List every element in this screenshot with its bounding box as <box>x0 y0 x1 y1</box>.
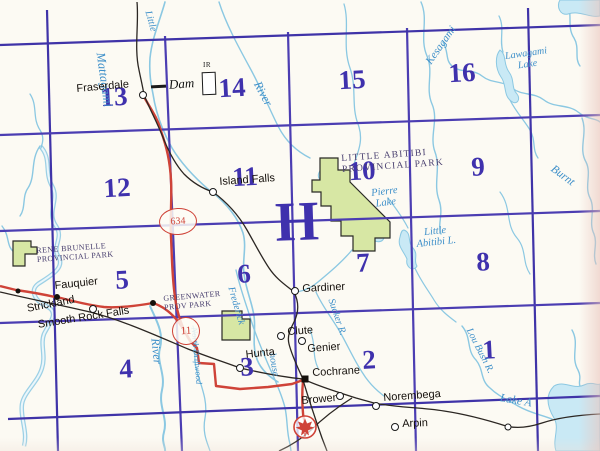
town-dot-hunta <box>236 364 244 372</box>
grid-number-14: 14 <box>218 72 247 104</box>
town-label-clute: Clute <box>287 324 313 338</box>
rene-brunelle-park-area <box>13 241 37 266</box>
indian-reserve-box <box>202 72 217 95</box>
map-index-sheet: 13141516121110956784321 MattagamiLittleR… <box>0 0 600 451</box>
water-label-little: LittleAbitibi L. <box>415 224 457 250</box>
map-dot-0 <box>16 289 21 294</box>
water-label-pierre: PierreLake <box>371 185 400 210</box>
town-dot-island-falls <box>209 188 217 196</box>
top-right-pond <box>558 0 600 16</box>
grid-number-8: 8 <box>475 246 490 278</box>
grid-number-9: 9 <box>470 151 485 183</box>
town-label-arpin: Arpin <box>402 417 428 430</box>
map-dot-1 <box>505 424 512 431</box>
grid-number-7: 7 <box>355 247 370 279</box>
indian-reserve-label: IR <box>203 61 211 69</box>
grid-v2 <box>165 36 182 451</box>
grid-number-2: 2 <box>361 344 376 376</box>
grid-number-12: 12 <box>103 172 132 204</box>
water-label-river: River <box>149 338 164 365</box>
grid-number-5: 5 <box>114 264 129 296</box>
mattagami-arm <box>2 146 40 252</box>
grid-number-15: 15 <box>338 64 367 96</box>
block-letter-h: H <box>274 189 320 254</box>
grid-number-6: 6 <box>236 258 251 290</box>
grid-v5 <box>528 8 538 451</box>
maple-leaf-marker <box>294 416 316 438</box>
little-abitibi-lake <box>399 230 417 269</box>
grid-h1 <box>0 25 600 45</box>
cell8-stream <box>500 192 530 274</box>
grid-number-4: 4 <box>118 353 133 385</box>
town-label-gardiner: Gardiner <box>302 281 345 295</box>
town-dot-norembega <box>372 402 380 410</box>
town-dot-cochrane <box>302 376 309 383</box>
town-label-genier: Genier <box>307 341 341 355</box>
river-south <box>150 306 165 451</box>
lake-abitibi <box>548 383 600 451</box>
grid-number-16: 16 <box>448 57 477 89</box>
town-dot-smooth-rock-falls <box>150 300 156 306</box>
town-label-cochrane: Cochrane <box>312 365 360 379</box>
town-dot-gardiner <box>291 287 299 295</box>
grid-h2 <box>0 115 600 135</box>
town-dot-clute <box>277 332 285 340</box>
town-dot-fraserdale <box>139 91 147 99</box>
corner-stream <box>30 94 43 148</box>
town-dot-arpin <box>391 423 399 431</box>
burnt-river <box>443 2 600 264</box>
town-dot-brower <box>336 392 344 400</box>
town-dot-genier <box>298 337 306 345</box>
dam-label: Dam <box>168 75 194 93</box>
